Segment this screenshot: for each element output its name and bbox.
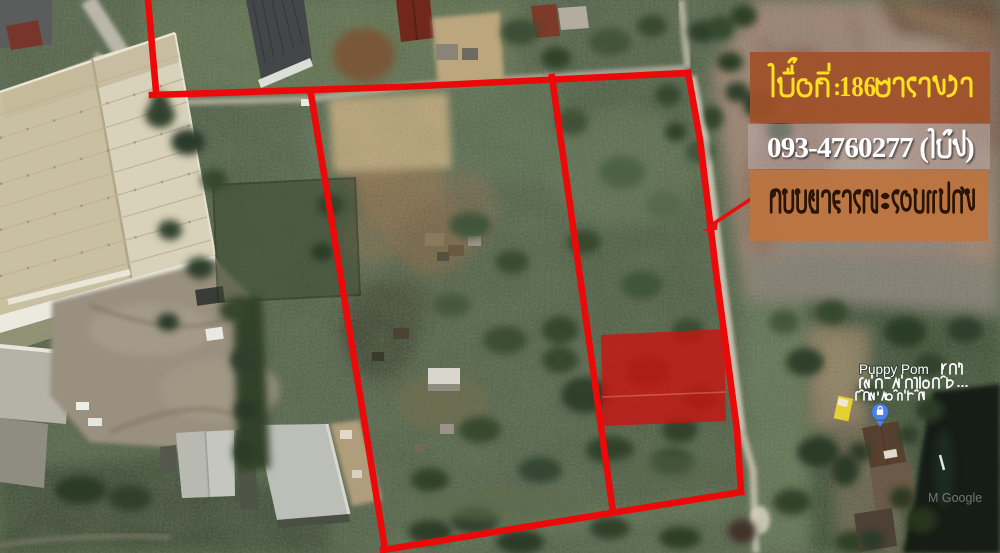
svg-text:186: 186 <box>839 72 876 103</box>
svg-text:M Google: M Google <box>928 491 982 505</box>
svg-text:): ) <box>965 132 975 164</box>
svg-text:Puppy Pom: Puppy Pom <box>859 362 929 377</box>
svg-text:093-4760277 (: 093-4760277 ( <box>767 132 928 164</box>
